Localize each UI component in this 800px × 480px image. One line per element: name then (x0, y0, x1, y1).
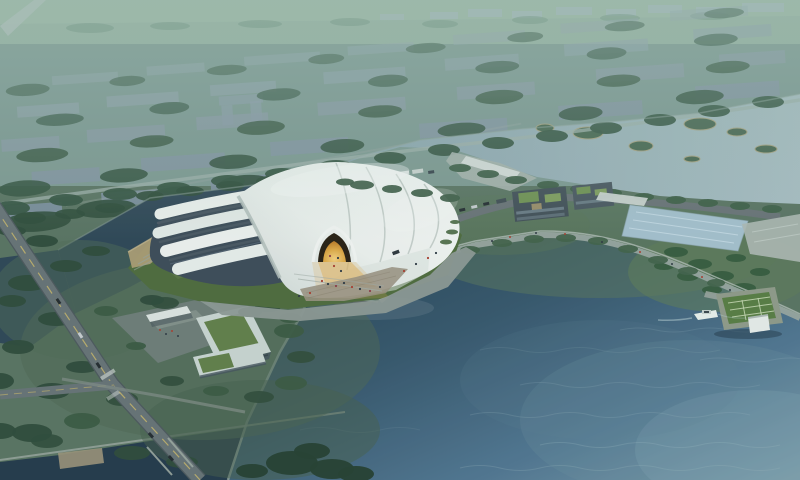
color-tint (0, 0, 800, 480)
rendering-viewport (0, 0, 800, 480)
scene-svg (0, 0, 800, 480)
layer-effects (0, 0, 800, 480)
